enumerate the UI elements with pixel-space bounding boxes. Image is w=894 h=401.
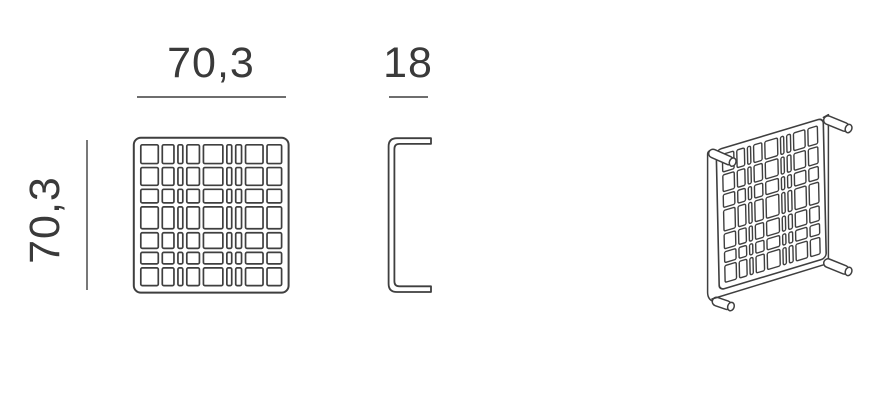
grid-cell <box>227 268 232 286</box>
grid-cell <box>178 233 183 249</box>
grid-cell <box>267 189 282 203</box>
grid-cell <box>203 145 222 164</box>
grid-cell <box>794 170 806 186</box>
front-view <box>134 138 289 293</box>
grid-cell <box>227 252 232 263</box>
grid-cell <box>178 168 183 186</box>
grid-cell <box>267 233 282 249</box>
grid-cell <box>203 252 222 263</box>
grid-cell <box>783 247 787 265</box>
grid-cell <box>781 176 784 190</box>
grid-cell <box>162 189 174 203</box>
grid-cell <box>782 192 786 214</box>
grid-cell <box>766 194 779 218</box>
grid-cell <box>187 189 200 203</box>
grid-cell <box>810 206 820 224</box>
grid-cell <box>747 146 751 165</box>
grid-cell <box>755 199 764 222</box>
grid-cell <box>162 145 174 164</box>
grid-cell <box>789 231 793 243</box>
grid-cell <box>227 207 232 229</box>
grid-cell <box>765 159 778 180</box>
grid-cell <box>178 207 183 229</box>
grid-cell <box>236 145 242 164</box>
grid-cell <box>141 207 158 229</box>
dimension-width-label: 70,3 <box>136 42 286 85</box>
grid-cell <box>809 166 819 182</box>
grid-cell <box>227 168 232 186</box>
grid-cell <box>187 145 200 164</box>
grid-cell <box>780 136 784 155</box>
grid-cell <box>782 216 785 232</box>
grid-cell <box>187 233 200 249</box>
grid-cell <box>203 268 222 286</box>
grid-cell <box>795 209 807 227</box>
grid-cell <box>162 207 174 229</box>
grid-cell <box>739 259 747 278</box>
grid-cell <box>178 189 183 203</box>
grid-cell <box>738 228 746 245</box>
grid-cell <box>246 252 263 263</box>
grid-cell <box>767 218 780 237</box>
grid-cell <box>187 207 200 229</box>
grid-cell <box>788 214 792 230</box>
grid-cell <box>141 168 158 186</box>
grid-cell <box>810 237 820 257</box>
grid-cell <box>723 191 735 207</box>
grid-cell <box>756 240 764 253</box>
grid-cell <box>737 148 745 168</box>
grid-cell <box>141 233 158 249</box>
grid-cell <box>246 207 263 229</box>
grid-cell <box>203 233 222 249</box>
grid-cell <box>236 207 242 229</box>
grid-cell <box>178 145 183 164</box>
dimension-depth-label: 18 <box>358 42 458 85</box>
side-profile-view <box>389 138 431 292</box>
grid-cell <box>788 174 792 188</box>
grid-cell <box>756 254 765 273</box>
grid-cell <box>236 168 242 186</box>
grid-cell <box>754 143 763 163</box>
grid-cell <box>789 245 793 263</box>
grid-cell <box>765 138 778 159</box>
grid-cell <box>267 252 282 263</box>
grid-cell <box>808 147 818 167</box>
grid-cell <box>755 222 764 239</box>
grid-cell <box>141 252 158 263</box>
grid-cell <box>787 155 791 173</box>
grid-cell <box>737 168 745 187</box>
grid-cell <box>178 252 183 263</box>
grid-cell <box>236 189 242 203</box>
grid-cell <box>808 126 818 147</box>
grid-cell <box>795 186 807 210</box>
grid-cell <box>738 204 746 227</box>
grid-cell <box>749 243 752 255</box>
grid-cell <box>246 145 263 164</box>
grid-cell <box>246 268 263 286</box>
grid-cell <box>227 145 232 164</box>
grid-cell <box>723 172 735 192</box>
grid-cell <box>162 268 174 286</box>
grid-cell <box>203 168 222 186</box>
grid-cell <box>236 268 242 286</box>
grid-cell <box>750 257 754 275</box>
grid-cell <box>724 231 736 249</box>
grid-cell <box>203 189 222 203</box>
grid-cell <box>767 249 780 270</box>
grid-cell <box>739 245 747 258</box>
grid-cell <box>187 168 200 186</box>
grid-cell <box>141 268 158 286</box>
grid-cell <box>788 190 792 212</box>
technical-drawing: 70,3 18 70,3 <box>0 0 894 401</box>
grid-cell <box>162 252 174 263</box>
grid-cell <box>162 168 174 186</box>
perspective-view <box>707 115 853 312</box>
grid-cell <box>810 223 820 237</box>
dimension-height-label: 70,3 <box>23 145 67 295</box>
grid-cell <box>267 145 282 164</box>
grid-cell <box>162 233 174 249</box>
grid-cell <box>227 189 232 203</box>
grid-cell <box>141 189 158 203</box>
grid-cell <box>749 226 752 242</box>
grid-cell <box>738 188 746 203</box>
grid-cell <box>246 233 263 249</box>
connector-tube-top-right <box>822 115 853 134</box>
connector-tube-bottom-right <box>822 258 853 277</box>
grid-cell <box>246 168 263 186</box>
grid-cell <box>794 150 806 170</box>
grid-cell <box>203 207 222 229</box>
grid-cell <box>754 163 763 182</box>
grid-cell <box>267 268 282 286</box>
grid-cell <box>754 183 763 198</box>
grid-cell <box>236 252 242 263</box>
grid-cell <box>748 167 752 185</box>
grid-cell <box>246 189 263 203</box>
grid-cell <box>178 268 183 286</box>
grid-cell <box>187 252 200 263</box>
grid-cell <box>267 207 282 229</box>
grid-cell <box>783 234 786 246</box>
grid-cell <box>749 202 753 224</box>
grid-cell <box>793 130 805 151</box>
grid-cell <box>267 168 282 186</box>
grid-cell <box>781 157 785 175</box>
grid-cell <box>724 207 736 231</box>
grid-cell <box>187 268 200 286</box>
grid-cell <box>141 145 158 164</box>
grid-cell <box>725 262 737 282</box>
grid-cell <box>787 134 791 153</box>
grid-cell <box>236 233 242 249</box>
grid-cell <box>748 186 751 200</box>
grid-cell <box>227 233 232 249</box>
grid-cell <box>809 182 819 205</box>
grid-cell <box>796 241 808 261</box>
